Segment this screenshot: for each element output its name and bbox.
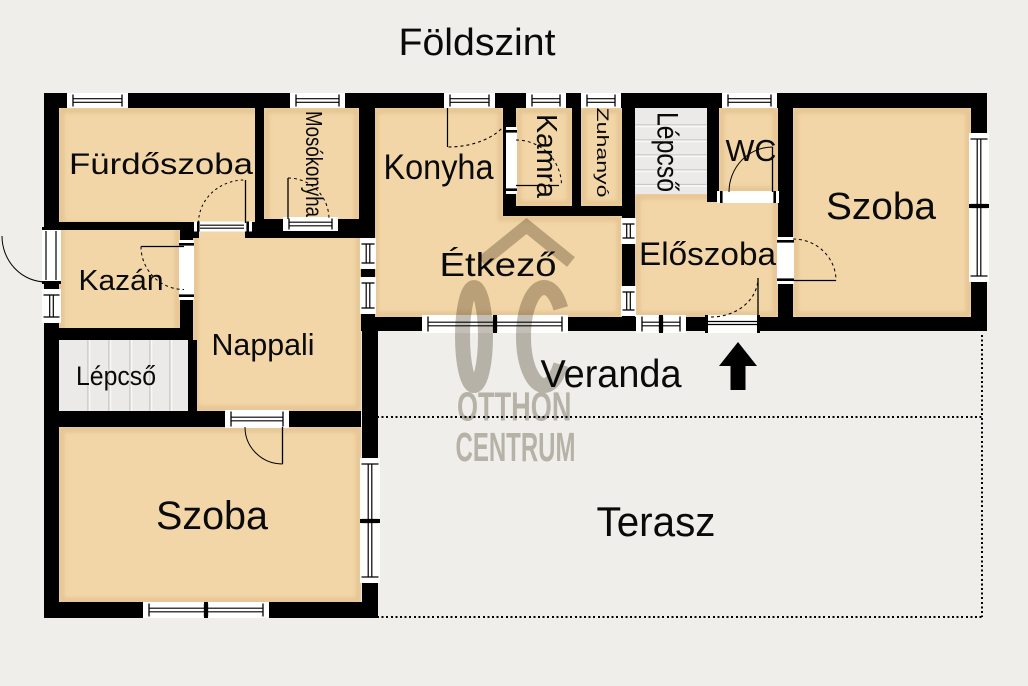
svg-text:Lépcső: Lépcső bbox=[76, 361, 156, 391]
svg-text:Nappali: Nappali bbox=[212, 327, 315, 362]
svg-text:WC: WC bbox=[726, 133, 777, 168]
svg-text:Zuhanyó: Zuhanyó bbox=[593, 108, 612, 198]
svg-text:CENTRUM: CENTRUM bbox=[456, 424, 576, 470]
svg-text:Konyha: Konyha bbox=[384, 148, 494, 187]
svg-text:Kazán: Kazán bbox=[79, 265, 164, 297]
svg-text:Lépcső: Lépcső bbox=[651, 112, 684, 192]
svg-text:Szoba: Szoba bbox=[156, 494, 268, 538]
svg-text:Mosókonyha: Mosókonyha bbox=[301, 111, 327, 217]
svg-text:Előszoba: Előszoba bbox=[639, 236, 776, 272]
svg-text:Fürdőszoba: Fürdőszoba bbox=[69, 148, 253, 181]
svg-text:OTTHON: OTTHON bbox=[457, 384, 572, 430]
svg-text:Kamra: Kamra bbox=[530, 114, 562, 199]
svg-text:Földszint: Földszint bbox=[399, 22, 556, 64]
svg-text:Szoba: Szoba bbox=[826, 186, 937, 228]
svg-text:Terasz: Terasz bbox=[597, 498, 716, 545]
